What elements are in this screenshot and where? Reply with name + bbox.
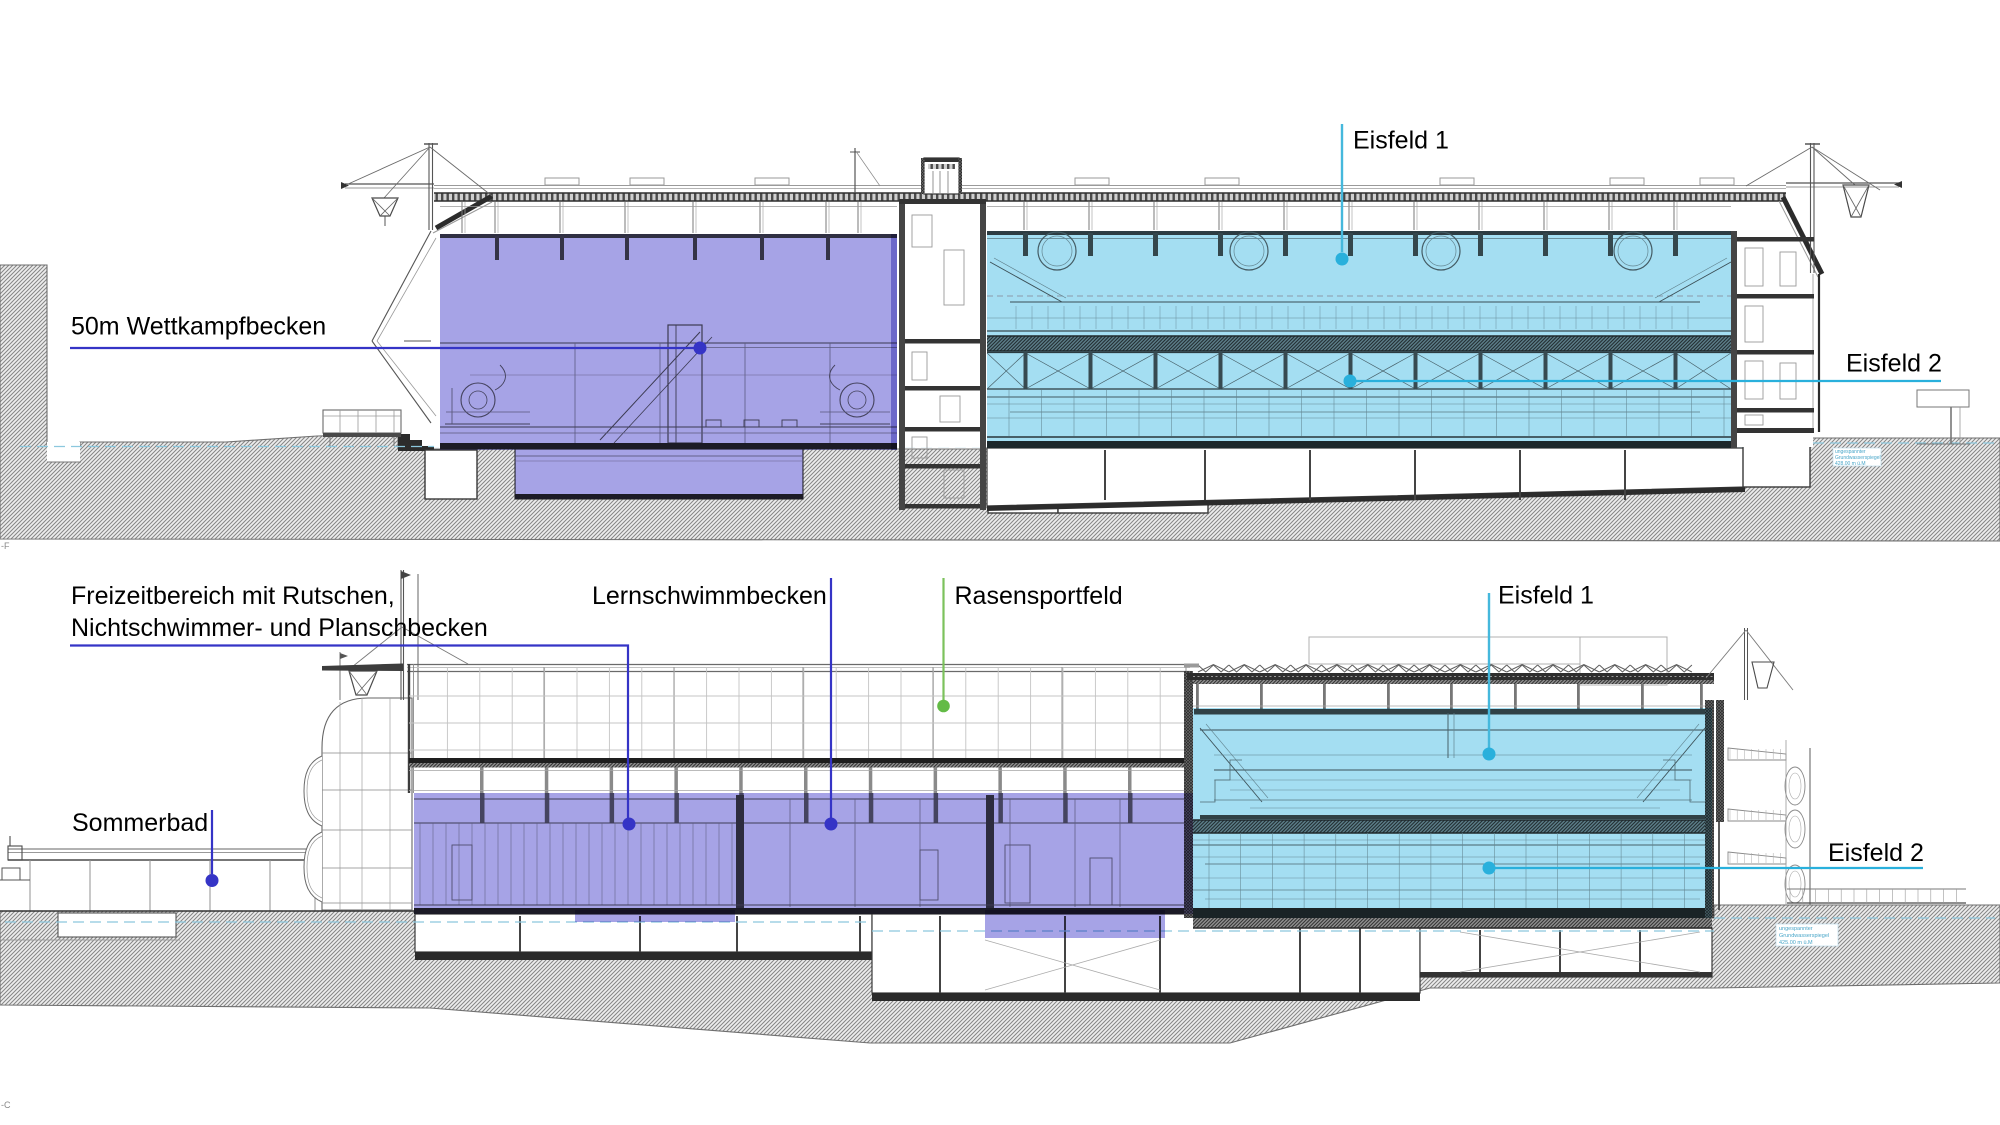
svg-text:Eisfeld 1: Eisfeld 1	[1353, 127, 1449, 155]
svg-text:Eisfeld 2: Eisfeld 2	[1828, 839, 1924, 867]
svg-text:-C: -C	[1, 1100, 11, 1110]
svg-text:-F: -F	[1, 541, 10, 551]
svg-text:Eisfeld 1: Eisfeld 1	[1498, 582, 1594, 610]
svg-text:Sommerbad: Sommerbad	[72, 809, 208, 837]
svg-text:Eisfeld 2: Eisfeld 2	[1846, 350, 1942, 378]
svg-text:Nichtschwimmer- und Planschbec: Nichtschwimmer- und Planschbecken	[71, 614, 488, 642]
svg-text:428.00 m ü.M: 428.00 m ü.M	[1835, 461, 1866, 467]
svg-text:Freizeitbereich mit Rutschen,: Freizeitbereich mit Rutschen,	[71, 582, 395, 610]
svg-text:Rasensportfeld: Rasensportfeld	[955, 582, 1123, 610]
svg-text:50m Wettkampfbecken: 50m Wettkampfbecken	[71, 313, 326, 341]
svg-text:425.00 m ü.M: 425.00 m ü.M	[1779, 940, 1813, 946]
svg-text:Lernschwimmbecken: Lernschwimmbecken	[592, 582, 827, 610]
svg-text:Grundwasserspiegel: Grundwasserspiegel	[1779, 933, 1829, 939]
svg-text:ungespannter: ungespannter	[1779, 926, 1813, 932]
